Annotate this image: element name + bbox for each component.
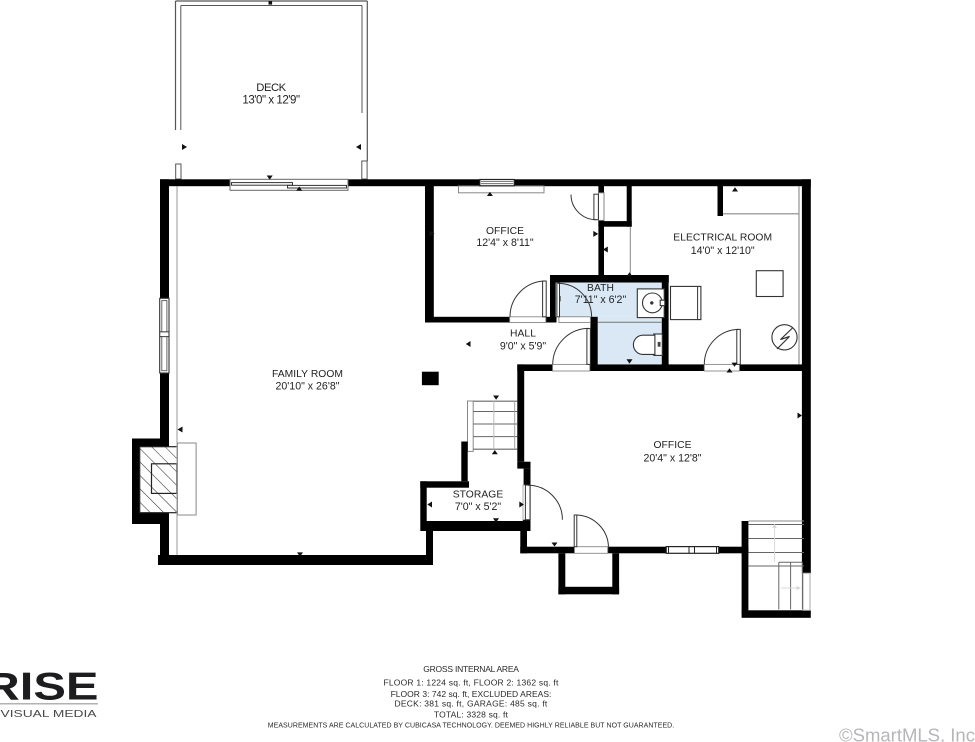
svg-text:RISE: RISE	[0, 665, 99, 708]
svg-text:DECK: 381 sq. ft, GARAGE: 485: DECK: 381 sq. ft, GARAGE: 485 sq. ft	[394, 698, 547, 708]
svg-text:OFFICE: OFFICE	[653, 440, 691, 451]
svg-text:9'0" x 5'9": 9'0" x 5'9"	[500, 340, 547, 352]
svg-text:TOTAL: 3328 sq. ft: TOTAL: 3328 sq. ft	[434, 709, 509, 719]
svg-text:STORAGE: STORAGE	[453, 489, 504, 500]
svg-text:14'0" x 12'10": 14'0" x 12'10"	[691, 245, 755, 257]
svg-text:OFFICE: OFFICE	[486, 226, 524, 237]
svg-text:©SmartMLS, Inc., 2022: ©SmartMLS, Inc., 2022	[839, 724, 975, 742]
svg-text:HALL: HALL	[510, 329, 536, 340]
svg-text:20'4" x 12'8": 20'4" x 12'8"	[643, 453, 701, 465]
svg-text:13'0" x 12'9": 13'0" x 12'9"	[242, 95, 300, 107]
svg-text:FLOOR 1: 1224 sq. ft, FLOOR 2:: FLOOR 1: 1224 sq. ft, FLOOR 2: 1362 sq. …	[383, 677, 559, 687]
svg-text:VISUAL MEDIA: VISUAL MEDIA	[1, 708, 97, 720]
svg-text:12'4" x 8'11": 12'4" x 8'11"	[476, 237, 534, 249]
svg-text:20'10" x 26'8": 20'10" x 26'8"	[276, 381, 340, 393]
svg-text:DECK: DECK	[256, 82, 286, 94]
svg-text:7'11" x 6'2": 7'11" x 6'2"	[575, 294, 627, 306]
svg-text:FAMILY ROOM: FAMILY ROOM	[272, 369, 343, 380]
svg-text:7'0" x 5'2": 7'0" x 5'2"	[455, 501, 502, 513]
svg-text:MEASUREMENTS ARE CALCULATED BY: MEASUREMENTS ARE CALCULATED BY CUBICASA …	[268, 723, 675, 730]
svg-text:BATH: BATH	[587, 283, 614, 294]
svg-text:GROSS INTERNAL AREA: GROSS INTERNAL AREA	[423, 664, 519, 674]
svg-text:ELECTRICAL ROOM: ELECTRICAL ROOM	[673, 232, 772, 243]
